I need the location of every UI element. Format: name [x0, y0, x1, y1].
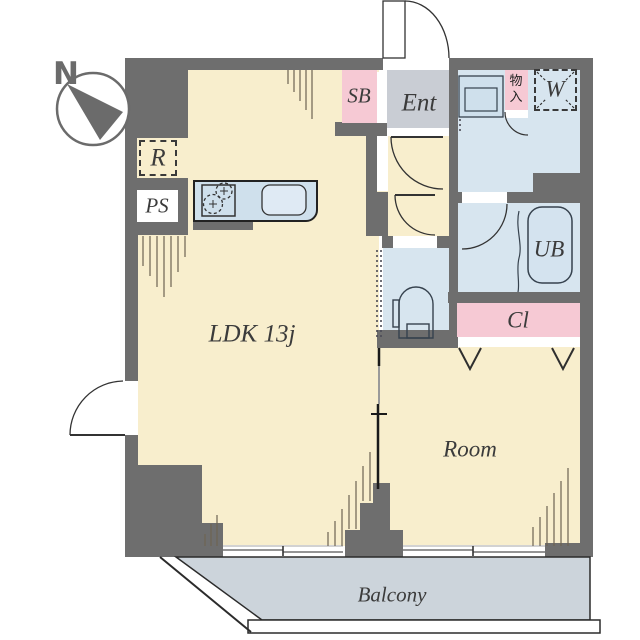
label-pipe-space: PS: [145, 196, 168, 217]
label-closet: Cl: [507, 309, 529, 332]
north-label: N: [53, 56, 79, 92]
label-ldk: LDK 13j: [209, 322, 296, 347]
storage-door-icon: [505, 112, 528, 135]
stove-icon: [202, 183, 235, 216]
bath-door-icon: [462, 204, 507, 249]
left-door-icon: [70, 381, 125, 435]
kitchen-sink-icon: [262, 185, 306, 215]
ldk-door-icon: [391, 137, 443, 189]
floor-plan: N LDK 13j Room Balcony Ent SB R PS UB Cl…: [0, 0, 640, 640]
label-balcony: Balcony: [358, 585, 427, 606]
label-unit-bath: UB: [534, 238, 565, 261]
label-refrigerator: R: [150, 146, 165, 171]
entrance-door-icon: [383, 1, 449, 58]
label-bedroom: Room: [443, 438, 497, 461]
label-shoe-box: SB: [347, 86, 370, 107]
sliding-door-icon: [377, 79, 460, 338]
folding-door-icon: [459, 348, 574, 369]
partition-slider-icon: [371, 348, 387, 489]
label-storage: 物入: [507, 74, 525, 105]
window-glass-lines: [223, 546, 545, 556]
toilet-door-icon: [395, 195, 435, 235]
linework-layer: [0, 0, 640, 640]
label-washer: W: [545, 78, 564, 101]
corner-hatch-lines: [143, 70, 568, 546]
toilet-icon: [393, 287, 433, 338]
washbasin-icon: [459, 76, 503, 117]
label-entrance: Ent: [402, 91, 437, 116]
